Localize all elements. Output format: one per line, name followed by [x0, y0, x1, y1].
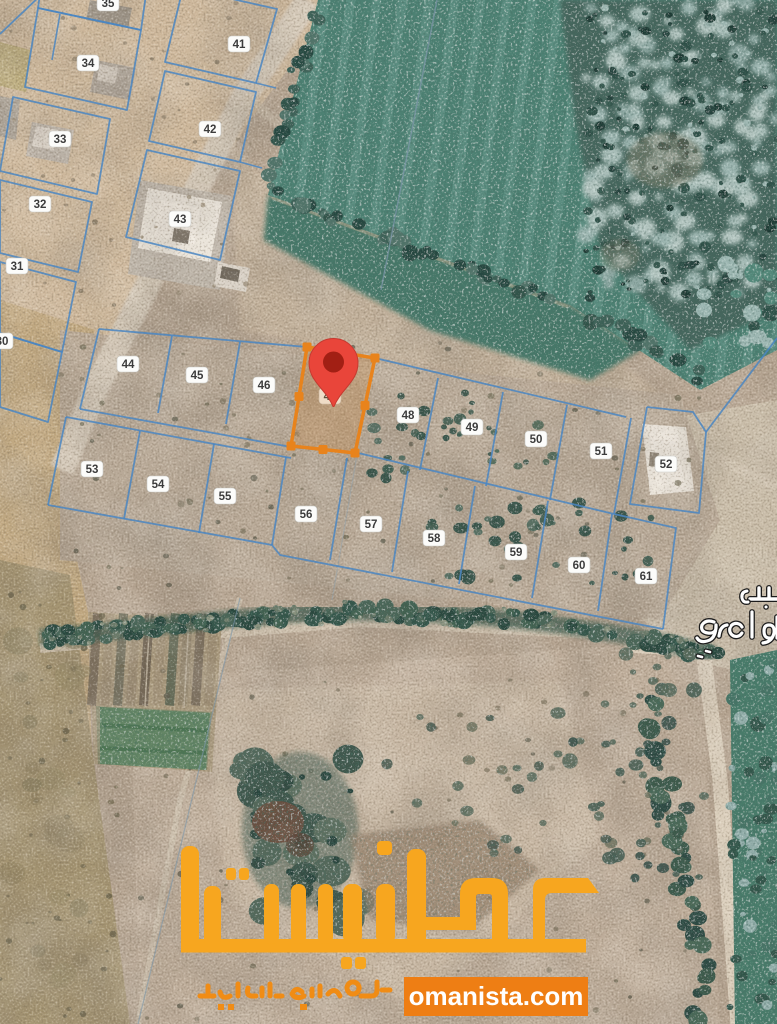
svg-text:51: 51	[595, 446, 608, 458]
svg-text:34: 34	[82, 58, 95, 70]
svg-text:58: 58	[428, 533, 441, 545]
svg-text:41: 41	[233, 39, 246, 51]
svg-text:56: 56	[300, 509, 313, 521]
svg-text:59: 59	[510, 547, 523, 559]
svg-text:30: 30	[0, 336, 8, 348]
svg-text:32: 32	[34, 199, 47, 211]
svg-text:33: 33	[54, 134, 67, 146]
svg-text:46: 46	[258, 380, 271, 392]
svg-text:44: 44	[122, 359, 135, 371]
svg-text:53: 53	[86, 464, 99, 476]
svg-text:48: 48	[402, 410, 415, 422]
svg-text:43: 43	[174, 214, 187, 226]
svg-text:52: 52	[660, 459, 673, 471]
svg-text:60: 60	[573, 560, 586, 572]
svg-text:31: 31	[11, 261, 24, 273]
svg-text:35: 35	[102, 0, 115, 10]
svg-text:50: 50	[530, 434, 543, 446]
svg-text:omanista.com: omanista.com	[409, 981, 584, 1011]
svg-text:61: 61	[640, 571, 653, 583]
svg-text:42: 42	[204, 124, 217, 136]
svg-text:57: 57	[365, 519, 378, 531]
svg-text:45: 45	[191, 370, 204, 382]
svg-text:54: 54	[152, 479, 165, 491]
svg-text:55: 55	[219, 491, 232, 503]
svg-text:49: 49	[466, 422, 479, 434]
